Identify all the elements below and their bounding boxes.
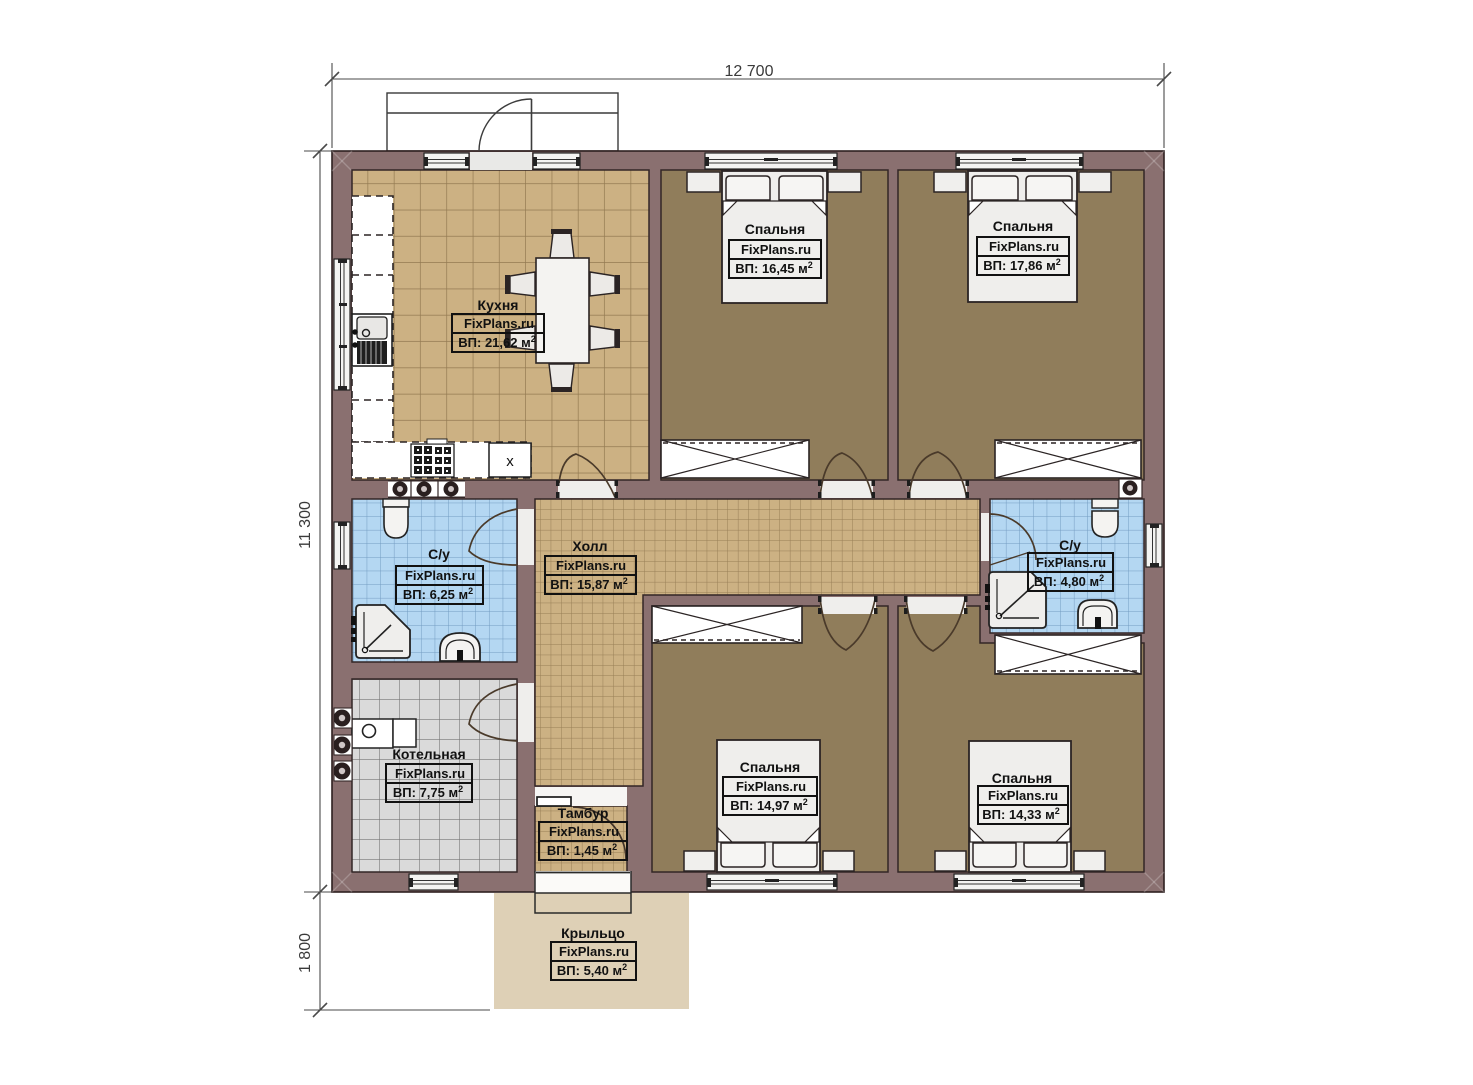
svg-text:FixPlans.ru: FixPlans.ru — [549, 824, 619, 839]
svg-text:ВП: 16,45 м2: ВП: 16,45 м2 — [735, 260, 812, 276]
svg-text:ВП: 17,86 м2: ВП: 17,86 м2 — [983, 257, 1060, 273]
svg-text:FixPlans.ru: FixPlans.ru — [989, 239, 1059, 254]
svg-text:Тамбур: Тамбур — [558, 805, 609, 821]
svg-text:FixPlans.ru: FixPlans.ru — [405, 568, 475, 583]
svg-text:Спальня: Спальня — [993, 218, 1053, 234]
svg-text:ВП: 14,33 м2: ВП: 14,33 м2 — [982, 806, 1059, 822]
svg-text:x: x — [506, 453, 514, 470]
svg-text:1 800: 1 800 — [297, 933, 314, 973]
svg-text:ВП: 6,25 м2: ВП: 6,25 м2 — [403, 586, 473, 602]
svg-text:Спальня: Спальня — [745, 221, 805, 237]
svg-text:Крыльцо: Крыльцо — [561, 925, 625, 941]
svg-text:Спальня: Спальня — [740, 759, 800, 775]
svg-text:Кухня: Кухня — [478, 297, 519, 313]
svg-text:FixPlans.ru: FixPlans.ru — [736, 779, 806, 794]
svg-text:ВП: 5,40 м2: ВП: 5,40 м2 — [557, 962, 627, 978]
svg-text:ВП: 4,80 м2: ВП: 4,80 м2 — [1034, 573, 1104, 589]
svg-text:11 300: 11 300 — [297, 501, 314, 549]
svg-text:С/у: С/у — [428, 546, 450, 562]
svg-text:ВП: 21,62 м2: ВП: 21,62 м2 — [458, 334, 535, 350]
svg-text:ВП: 15,87 м2: ВП: 15,87 м2 — [550, 576, 627, 592]
svg-text:FixPlans.ru: FixPlans.ru — [556, 558, 626, 573]
svg-text:Холл: Холл — [572, 538, 607, 554]
svg-text:FixPlans.ru: FixPlans.ru — [988, 788, 1058, 803]
svg-text:ВП: 14,97 м2: ВП: 14,97 м2 — [730, 797, 807, 813]
svg-text:FixPlans.ru: FixPlans.ru — [464, 316, 534, 331]
svg-text:FixPlans.ru: FixPlans.ru — [741, 242, 811, 257]
svg-text:Спальня: Спальня — [992, 770, 1052, 786]
svg-text:Котельная: Котельная — [392, 746, 465, 762]
svg-text:FixPlans.ru: FixPlans.ru — [1036, 555, 1106, 570]
svg-text:С/у: С/у — [1059, 537, 1081, 553]
svg-text:ВП: 7,75 м2: ВП: 7,75 м2 — [393, 784, 463, 800]
svg-text:12 700: 12 700 — [725, 63, 774, 80]
svg-text:FixPlans.ru: FixPlans.ru — [559, 944, 629, 959]
svg-text:FixPlans.ru: FixPlans.ru — [395, 766, 465, 781]
svg-text:ВП: 1,45 м2: ВП: 1,45 м2 — [547, 842, 617, 858]
